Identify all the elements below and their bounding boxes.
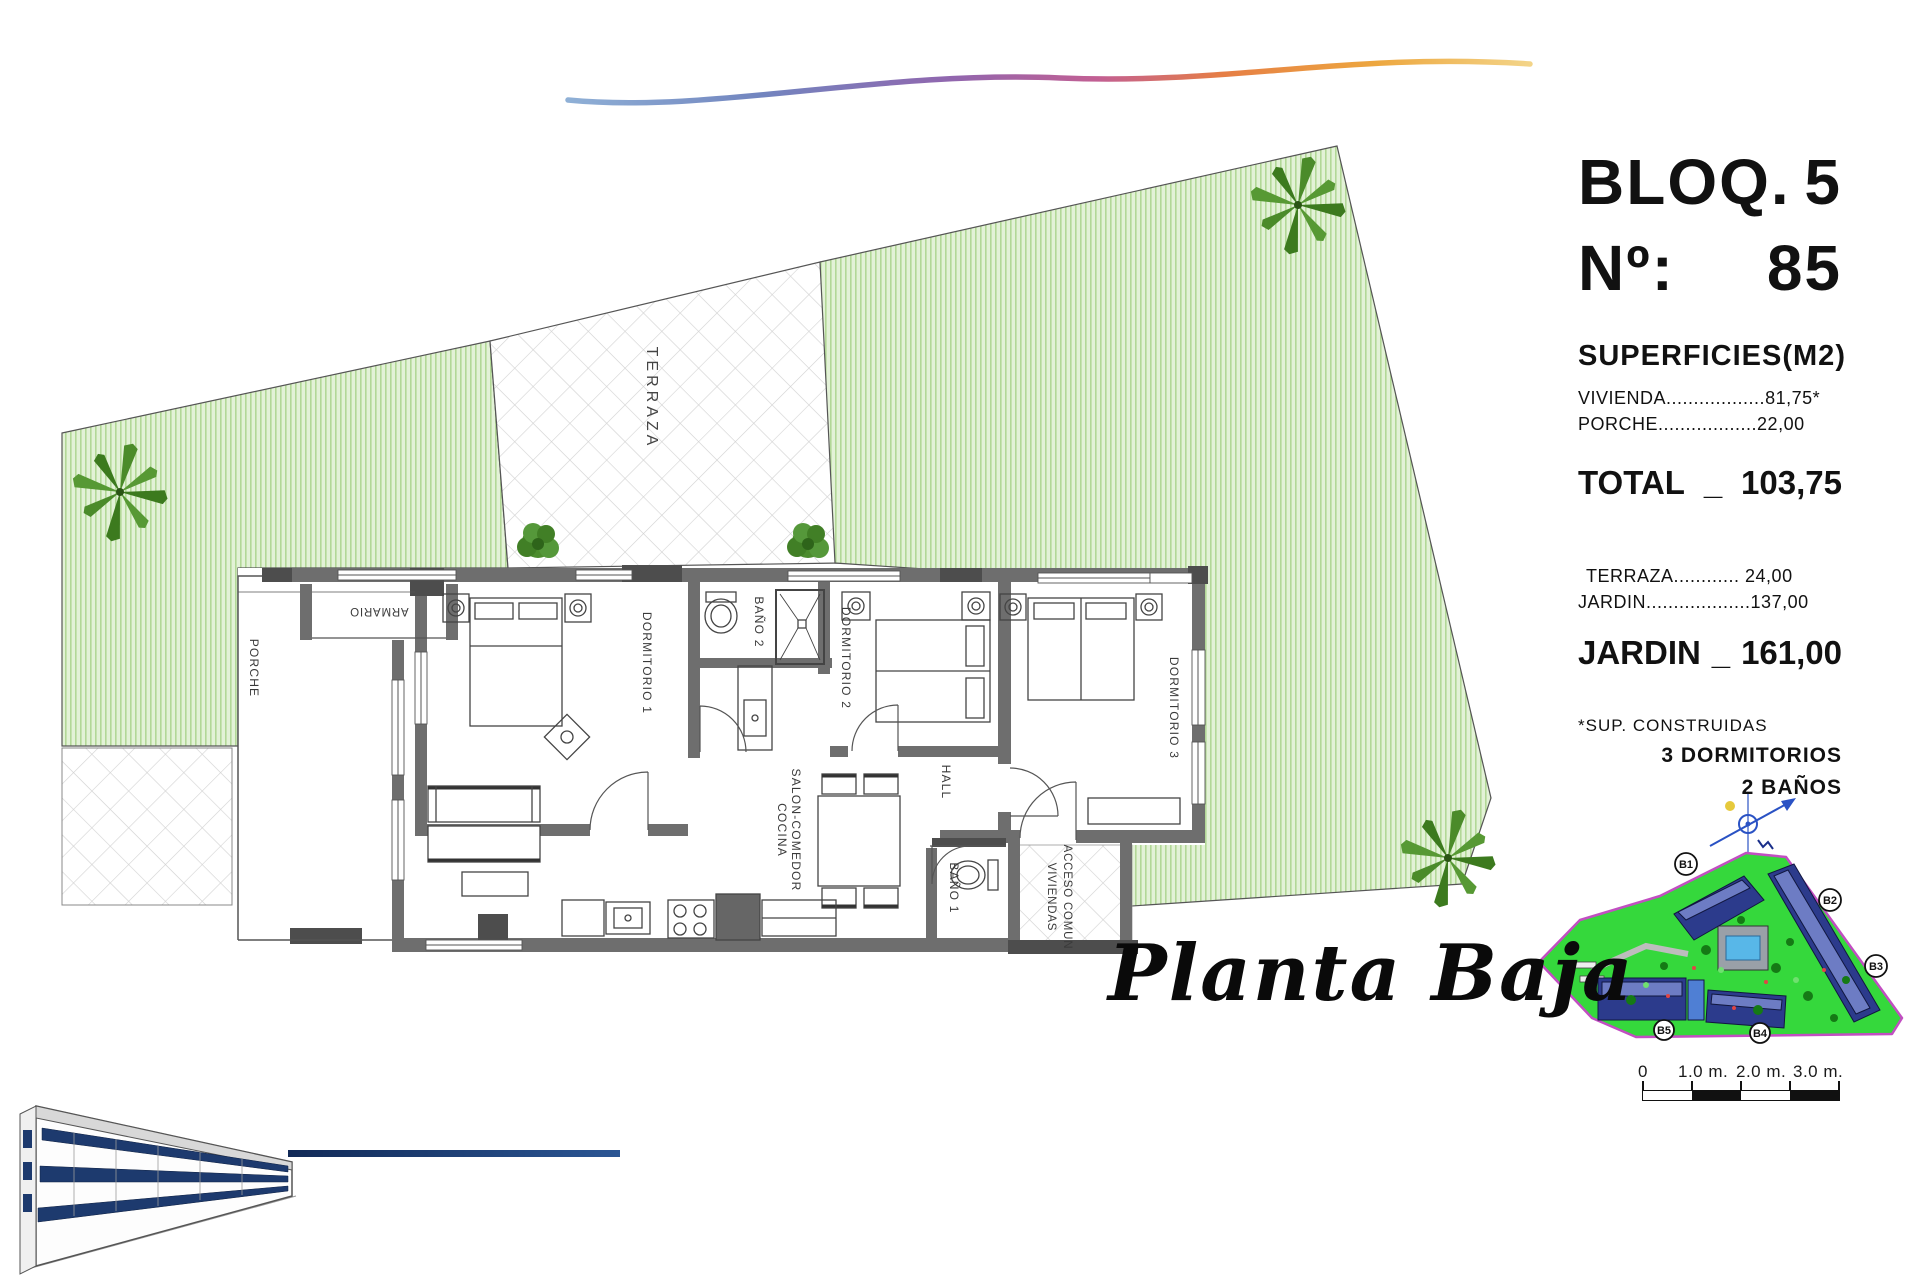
room-label-terraza: TERRAZA xyxy=(643,347,660,450)
info-panel: BLOQ.5 Nº:85 SUPERFICIES(M2) VIVIENDA...… xyxy=(1578,0,1842,830)
room-label-acceso-line2: VIVIENDAS xyxy=(1045,863,1057,932)
surface-row-jardin: JARDIN...................137,00 xyxy=(1578,592,1842,613)
page-title: Planta Baja xyxy=(1108,928,1635,1019)
site-block-b3: B3 xyxy=(1869,961,1883,973)
scale-tick-0: 0 xyxy=(1638,1062,1648,1082)
room-label-dormitorio1: DORMITORIO 1 xyxy=(640,612,654,714)
building-render xyxy=(6,1070,306,1278)
room-label-bano1: BAÑO 1 xyxy=(947,862,961,913)
footnote: *SUP. CONSTRUIDAS xyxy=(1578,716,1842,736)
site-block-b4: B4 xyxy=(1753,1028,1768,1040)
unit-number: 85 xyxy=(1767,236,1842,300)
surface-row-terraza: TERRAZA............ 24,00 xyxy=(1586,566,1850,587)
total-row: TOTAL_103,75 xyxy=(1578,466,1842,499)
room-label-dormitorio2: DORMITORIO 2 xyxy=(839,607,853,709)
room-label-porche: PORCHE xyxy=(247,639,261,698)
room-label-hall: HALL xyxy=(939,765,953,800)
scale-bar xyxy=(1642,1090,1840,1101)
decorative-navy-line xyxy=(288,1150,620,1157)
unit-number-row: Nº:85 xyxy=(1578,236,1842,300)
scale-tick-2: 2.0 m. xyxy=(1736,1062,1786,1082)
jardin-total-row: JARDIN_161,00 xyxy=(1578,636,1842,669)
block-number: 5 xyxy=(1804,150,1842,214)
block-title: BLOQ.5 xyxy=(1578,150,1842,214)
room-label-dormitorio3: DORMITORIO 3 xyxy=(1167,657,1181,759)
room-label-armario: ARMARIO xyxy=(349,605,408,617)
floor-plan: TERRAZA PORCHE ARMARIO DORMITORIO 1 BAÑO… xyxy=(40,120,1510,980)
room-label-bano2: BAÑO 2 xyxy=(752,596,766,647)
room-label-salon-line1: SALON-COMEDOR xyxy=(789,769,803,892)
scale-tick-3: 3.0 m. xyxy=(1793,1062,1843,1082)
room-label-acceso-line1: ACCESO COMUN xyxy=(1061,845,1073,950)
site-block-b1: B1 xyxy=(1679,859,1693,871)
scale-tick-1: 1.0 m. xyxy=(1678,1062,1728,1082)
paved-patch xyxy=(62,748,232,905)
surface-row-vivienda: VIVIENDA..................81,75* xyxy=(1578,388,1842,409)
compass-icon xyxy=(1698,786,1808,860)
room-label-salon-line2: COCINA xyxy=(775,803,789,857)
surfaces-title: SUPERFICIES(M2) xyxy=(1578,340,1842,373)
site-block-b2: B2 xyxy=(1823,895,1837,907)
program-bedrooms: 3 DORMITORIOS xyxy=(1578,744,1842,768)
surface-row-porche: PORCHE..................22,00 xyxy=(1578,414,1842,435)
gradient-swoosh xyxy=(560,48,1540,128)
plan-sheet: TERRAZA PORCHE ARMARIO DORMITORIO 1 BAÑO… xyxy=(0,0,1920,1280)
terrace-paving xyxy=(490,262,840,568)
site-block-b5: B5 xyxy=(1657,1025,1671,1037)
